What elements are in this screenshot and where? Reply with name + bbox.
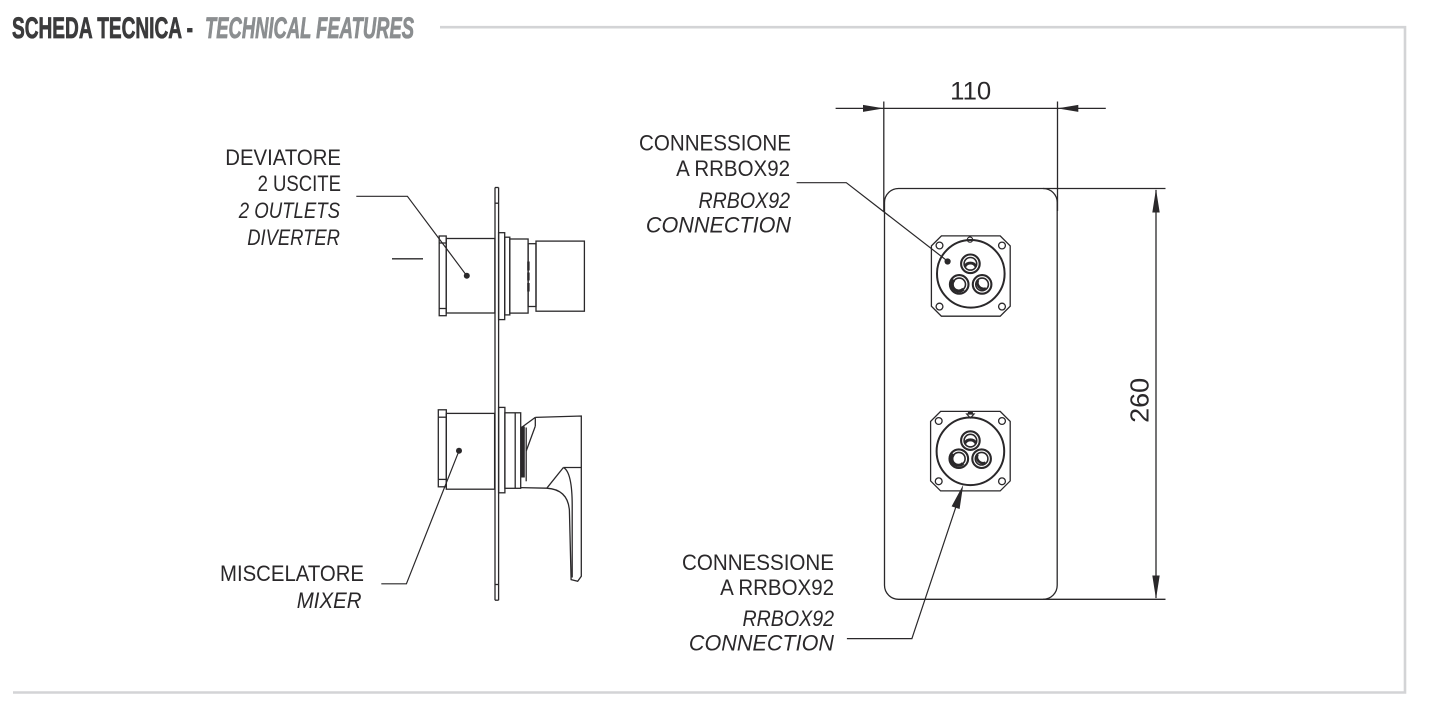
svg-text:SCHEDA TECNICA -: SCHEDA TECNICA -: [12, 12, 193, 45]
svg-text:CONNESSIONE: CONNESSIONE: [639, 131, 791, 156]
svg-text:MIXER: MIXER: [297, 588, 362, 613]
svg-text:DIVERTER: DIVERTER: [247, 225, 340, 250]
svg-text:2 USCITE: 2 USCITE: [258, 171, 341, 196]
svg-text:TECHNICAL FEATURES: TECHNICAL FEATURES: [205, 12, 414, 45]
svg-text:CONNECTION: CONNECTION: [646, 212, 791, 237]
svg-text:MISCELATORE: MISCELATORE: [220, 561, 364, 586]
svg-text:A RRBOX92: A RRBOX92: [720, 575, 834, 600]
svg-text:RRBOX92: RRBOX92: [699, 188, 791, 213]
svg-text:RRBOX92: RRBOX92: [743, 606, 835, 631]
svg-text:CONNECTION: CONNECTION: [689, 631, 834, 656]
svg-text:2 OUTLETS: 2 OUTLETS: [238, 198, 340, 223]
svg-text:110: 110: [950, 77, 991, 105]
svg-text:260: 260: [1125, 378, 1155, 423]
svg-text:A RRBOX92: A RRBOX92: [676, 156, 790, 181]
svg-text:CONNESSIONE: CONNESSIONE: [682, 550, 834, 575]
svg-text:DEVIATORE: DEVIATORE: [225, 145, 341, 170]
